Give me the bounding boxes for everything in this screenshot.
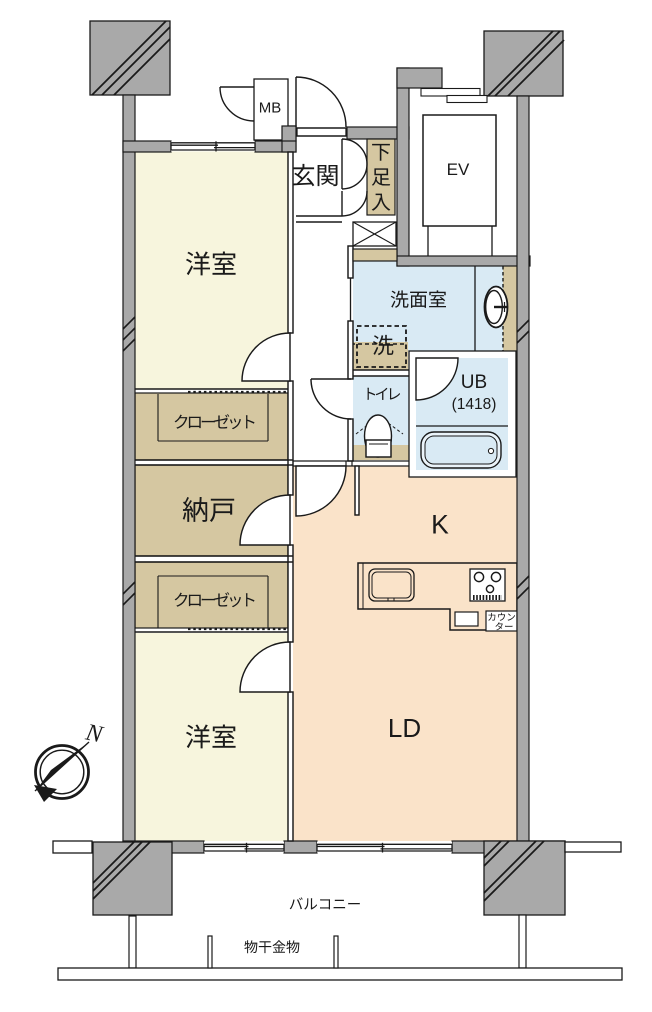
svg-text:K: K bbox=[431, 510, 449, 540]
svg-text:MB: MB bbox=[259, 100, 282, 117]
svg-text:EV: EV bbox=[447, 160, 470, 179]
svg-text:(1418): (1418) bbox=[452, 396, 497, 413]
svg-text:UB: UB bbox=[461, 372, 487, 393]
svg-text:LD: LD bbox=[388, 713, 421, 743]
